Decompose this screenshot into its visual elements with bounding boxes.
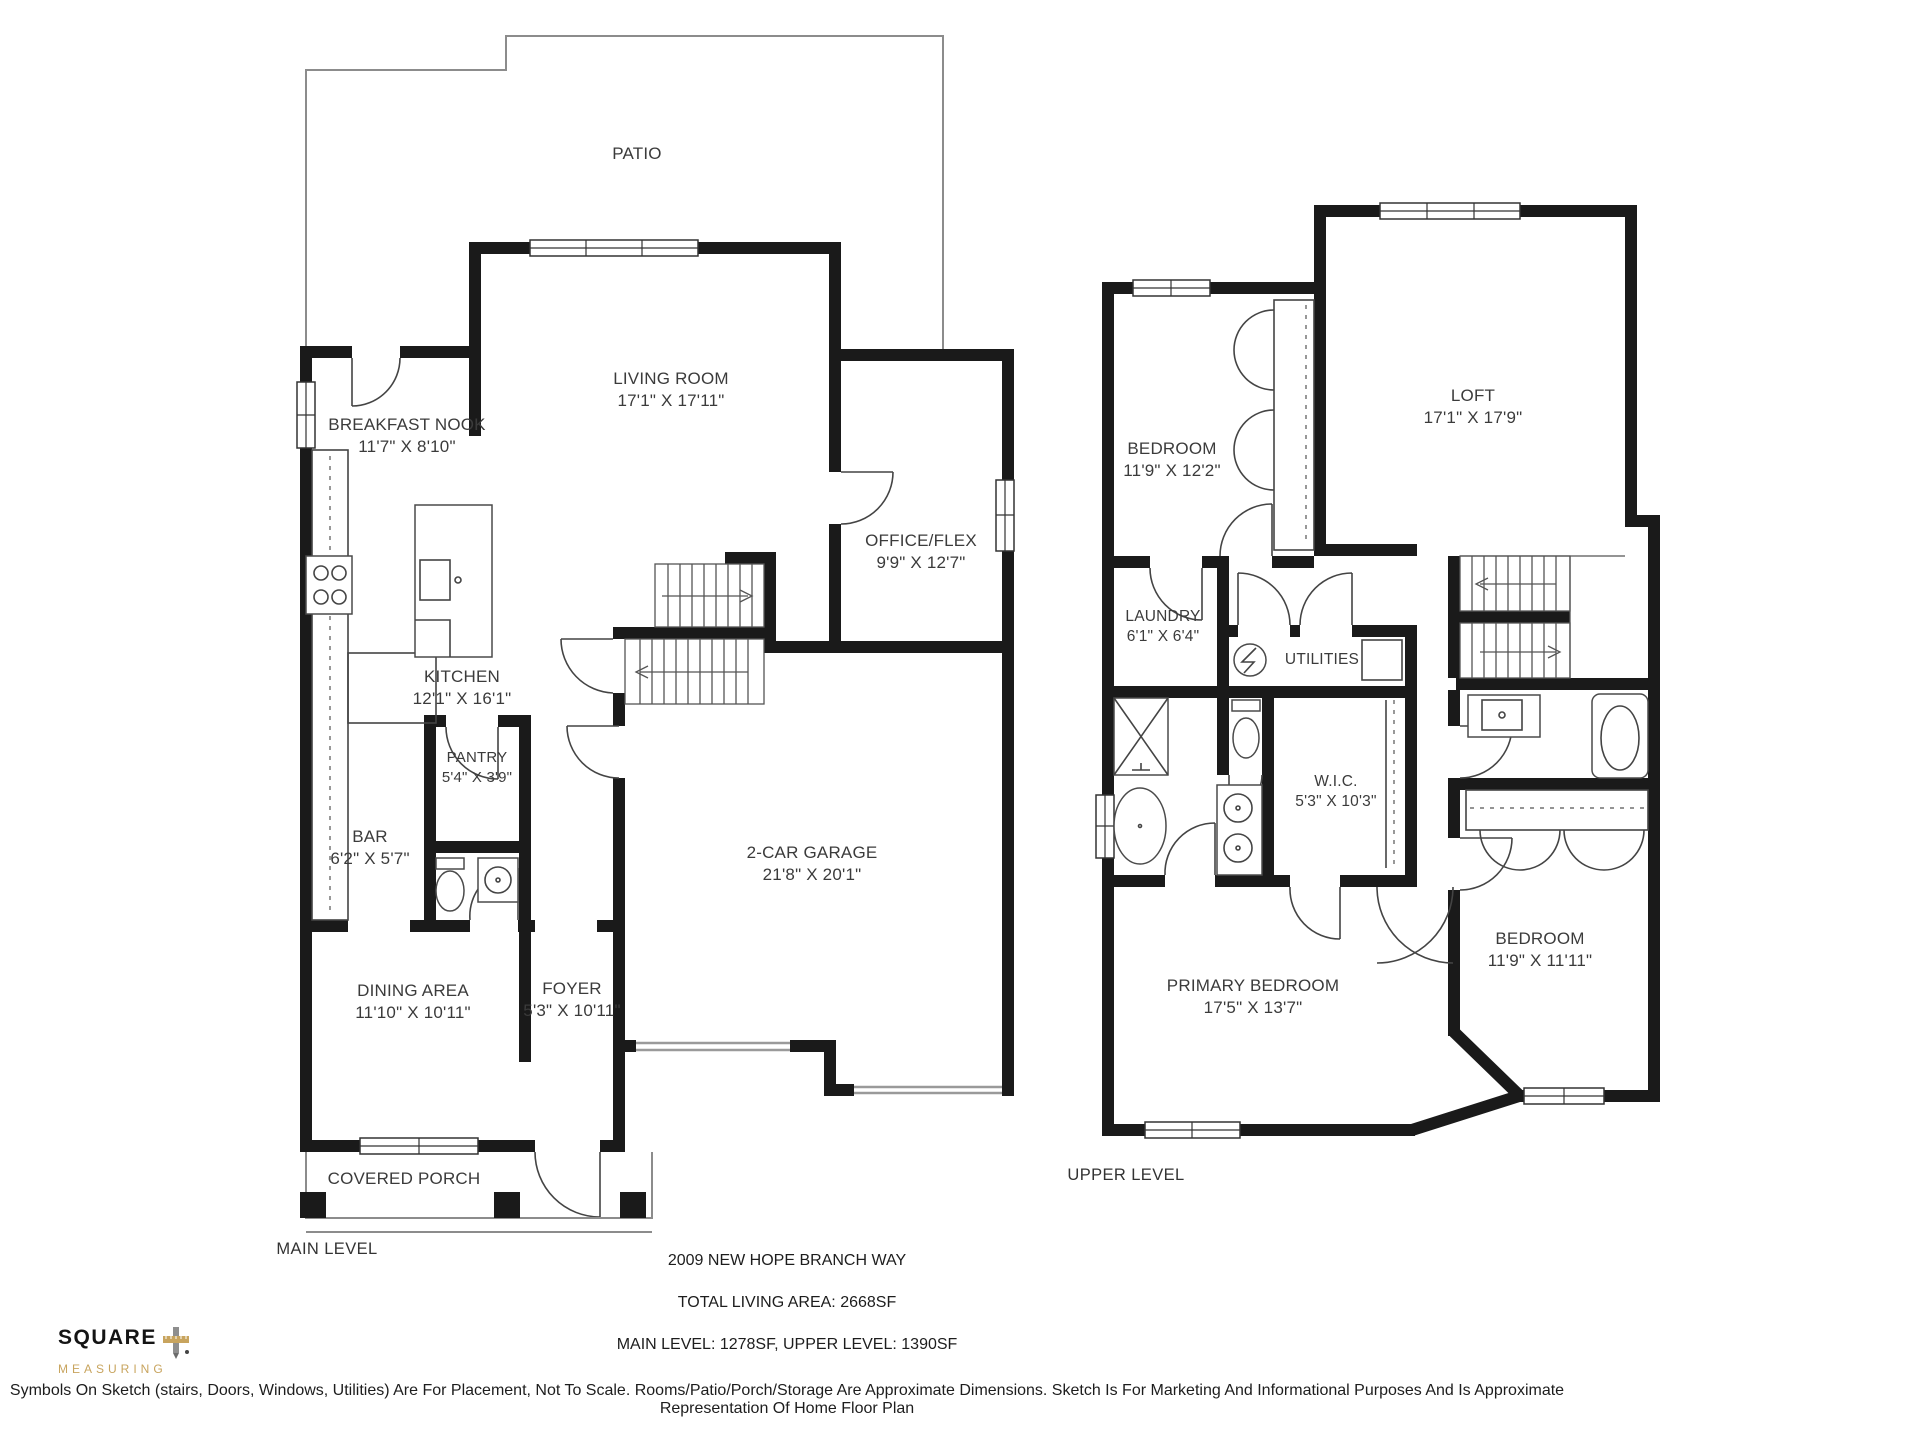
room-label-bedroom-2: BEDROOM11'9" X 11'11" bbox=[1488, 928, 1593, 973]
main-level-plan bbox=[297, 36, 1014, 1232]
door-office bbox=[841, 472, 893, 524]
room-label-wic: W.I.C.5'3" X 10'3" bbox=[1295, 772, 1376, 813]
shower-icon bbox=[1114, 698, 1168, 775]
square-measuring-logo: SQUARE MEASURING bbox=[58, 1326, 191, 1376]
window-icon bbox=[1524, 1088, 1604, 1104]
door-bedroom-2 bbox=[1460, 838, 1512, 890]
upper-level-label: UPPER LEVEL bbox=[1067, 1166, 1184, 1185]
room-label-bedroom-1: BEDROOM11'9" X 12'2" bbox=[1123, 438, 1220, 483]
door-breakfast-nook bbox=[352, 358, 400, 406]
room-label-patio: PATIO bbox=[612, 143, 662, 165]
toilet-icon bbox=[436, 858, 464, 911]
bedroom-2-closet bbox=[1466, 790, 1648, 830]
kitchen-island bbox=[415, 505, 492, 657]
room-label-breakfast-nook: BREAKFAST NOOK11'7" X 8'10" bbox=[328, 414, 485, 459]
room-label-laundry: LAUNDRY6'1" X 6'4" bbox=[1125, 607, 1200, 648]
tub-icon bbox=[1114, 788, 1166, 864]
room-label-utilities: UTILITIES bbox=[1285, 650, 1359, 670]
room-label-pantry: PANTRY5'4" X 3'9" bbox=[442, 748, 512, 788]
address-title: 2009 NEW HOPE BRANCH WAY bbox=[0, 1252, 1574, 1270]
ruler-pencil-icon bbox=[161, 1326, 191, 1360]
total-living-area: TOTAL LIVING AREA: 2668SF bbox=[0, 1294, 1574, 1312]
room-label-garage: 2-CAR GARAGE21'8" X 20'1" bbox=[747, 842, 878, 887]
room-label-bar: BAR6'2" X 5'7" bbox=[330, 826, 409, 871]
window-icon bbox=[996, 480, 1014, 551]
bedroom-1-closet bbox=[1274, 300, 1314, 550]
cooktop-icon bbox=[306, 556, 352, 614]
window-icon bbox=[1096, 795, 1114, 858]
room-label-kitchen: KITCHEN12'1" X 16'1" bbox=[413, 666, 512, 711]
toilet-icon bbox=[1232, 700, 1260, 758]
patio-outline bbox=[306, 36, 943, 349]
double-doors-primary-suite bbox=[1377, 887, 1453, 963]
bath2-tub-icon bbox=[1592, 694, 1648, 778]
door-utilities-right bbox=[1300, 573, 1352, 625]
wic-rod bbox=[1386, 700, 1394, 868]
door-primary-bath bbox=[1165, 823, 1215, 875]
room-label-loft: LOFT17'1" X 17'9" bbox=[1424, 385, 1523, 430]
logo-name: SQUARE bbox=[58, 1326, 157, 1350]
double-vanity bbox=[1217, 785, 1262, 875]
room-label-foyer: FOYER5'3" X 10'11" bbox=[523, 978, 620, 1023]
window-icon bbox=[1145, 1122, 1240, 1138]
door-front-entry bbox=[535, 1152, 600, 1217]
floor-plan-page: { "title_block": { "address": "2009 NEW … bbox=[0, 0, 1920, 1440]
room-label-office-flex: OFFICE/FLEX9'9" X 12'7" bbox=[865, 530, 977, 575]
closet-bifold-bedroom-1 bbox=[1234, 310, 1274, 490]
window-icon bbox=[360, 1138, 478, 1154]
level-areas: MAIN LEVEL: 1278SF, UPPER LEVEL: 1390SF bbox=[0, 1336, 1574, 1354]
window-icon bbox=[1380, 203, 1520, 219]
window-icon bbox=[530, 240, 698, 256]
room-label-primary-bedroom: PRIMARY BEDROOM17'5" X 13'7" bbox=[1167, 975, 1339, 1020]
door-utilities-left bbox=[1238, 573, 1290, 625]
window-icon bbox=[1133, 280, 1210, 296]
window-icon bbox=[297, 382, 315, 448]
door-garage-entry bbox=[567, 726, 619, 778]
disclaimer-text: Symbols On Sketch (stairs, Doors, Window… bbox=[0, 1382, 1574, 1418]
bath2-sink-icon bbox=[1468, 695, 1540, 737]
door-stair-hall bbox=[561, 639, 613, 693]
door-bedroom-1 bbox=[1220, 504, 1272, 556]
sink-icon bbox=[478, 858, 518, 902]
door-wic bbox=[1290, 887, 1340, 939]
floor-plan-drawing bbox=[0, 0, 1920, 1440]
logo-tagline: MEASURING bbox=[58, 1362, 191, 1376]
room-label-covered-porch: COVERED PORCH bbox=[328, 1168, 481, 1190]
room-label-dining-area: DINING AREA11'10" X 10'11" bbox=[355, 980, 470, 1025]
room-label-living-room: LIVING ROOM17'1" X 17'11" bbox=[613, 368, 729, 413]
